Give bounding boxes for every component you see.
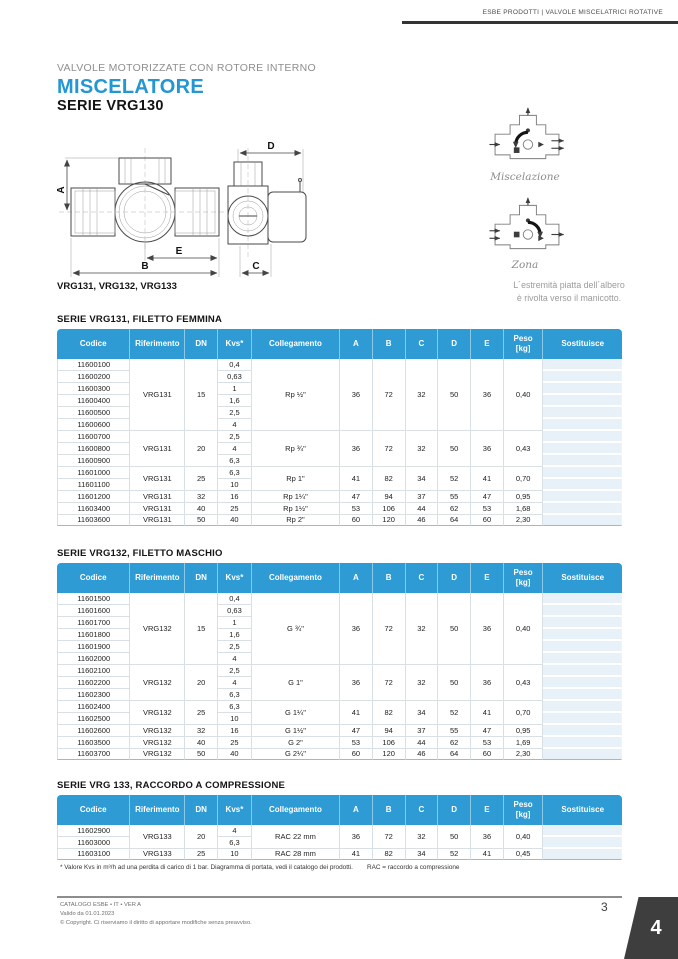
table-row: 11600100VRG131150,4Rp ½"36723250360,40 (57, 359, 622, 371)
column-header-collegamento: Collegamento (252, 329, 340, 359)
dim-label-d: D (267, 141, 274, 152)
cell-codice: 11600100 (57, 359, 130, 371)
cell-dn: 25 (185, 467, 218, 491)
column-header-peso: Peso [kg] (504, 795, 544, 825)
column-header-d: D (438, 329, 471, 359)
cell-sostituisce (543, 479, 622, 491)
data-table: CodiceRiferimentoDNKvs*CollegamentoABCDE… (57, 329, 622, 526)
cell-dn: 50 (185, 749, 218, 760)
cell-dn: 32 (185, 725, 218, 737)
cell-dn: 32 (185, 491, 218, 503)
cell-a: 47 (340, 725, 373, 737)
cell-riferimento: VRG131 (130, 491, 185, 503)
cell-sostituisce (543, 653, 622, 665)
table-row: 11603100VRG1332510RAC 28 mm41823452410,4… (57, 849, 622, 860)
cell-d: 62 (438, 503, 471, 515)
cell-sostituisce (543, 701, 622, 713)
column-header-c: C (406, 795, 439, 825)
cell-kvs: 1 (218, 383, 252, 395)
section-title: SERIE VRG 133, RACCORDO A COMPRESSIONE (57, 780, 622, 791)
eyebrow-text: VALVOLE MOTORIZZATE CON ROTORE INTERNO (57, 62, 316, 74)
cell-riferimento: VRG132 (130, 737, 185, 749)
cell-e: 36 (471, 359, 504, 431)
table-row: 11601000VRG131256,3Rp 1"41823452410,70 (57, 467, 622, 479)
column-header-sostituisce: Sostituisce (543, 795, 622, 825)
cell-a: 60 (340, 515, 373, 526)
column-header-peso: Peso [kg] (504, 329, 544, 359)
cell-kvs: 10 (218, 479, 252, 491)
cell-d: 52 (438, 467, 471, 491)
shaft-note-line1: L´estremità piatta dell´albero (513, 280, 624, 290)
drawing-caption: VRG131, VRG132, VRG133 (57, 281, 177, 292)
column-header-sostituisce: Sostituisce (543, 329, 622, 359)
cell-a: 41 (340, 701, 373, 725)
cell-peso: 0,43 (504, 665, 544, 701)
cell-collegamento: G 1¼" (252, 701, 340, 725)
cell-kvs: 16 (218, 491, 252, 503)
cell-sostituisce (543, 515, 622, 526)
cell-codice: 11602200 (57, 677, 130, 689)
cell-sostituisce (543, 825, 622, 837)
cell-kvs: 4 (218, 677, 252, 689)
cell-dn: 15 (185, 359, 218, 431)
cell-e: 41 (471, 701, 504, 725)
cell-d: 52 (438, 701, 471, 725)
cell-sostituisce (543, 665, 622, 677)
footer-rule (57, 896, 622, 898)
cell-b: 82 (373, 849, 406, 860)
cell-dn: 25 (185, 849, 218, 860)
cell-codice: 11603400 (57, 503, 130, 515)
table-row: 11603600VRG1315040Rp 2"601204664602,30 (57, 515, 622, 526)
cell-a: 36 (340, 593, 373, 665)
table-section-vrg131: SERIE VRG131, FILETTO FEMMINA CodiceRife… (57, 314, 622, 526)
cell-d: 50 (438, 431, 471, 467)
cell-b: 94 (373, 725, 406, 737)
footer-copyright-line: © Copyright. Ci riserviamo il diritto di… (60, 919, 252, 928)
cell-dn: 20 (185, 825, 218, 849)
dim-label-c: C (252, 261, 259, 272)
cell-codice: 11602500 (57, 713, 130, 725)
cell-riferimento: VRG132 (130, 749, 185, 760)
cell-collegamento: G 1" (252, 665, 340, 701)
cell-sostituisce (543, 617, 622, 629)
cell-codice: 11602000 (57, 653, 130, 665)
zone-label: Zona (453, 259, 597, 271)
cell-sostituisce (543, 677, 622, 689)
table-row: 11602600VRG1323216G 1½"47943755470,95 (57, 725, 622, 737)
cell-c: 34 (406, 701, 439, 725)
cell-sostituisce (543, 467, 622, 479)
cell-sostituisce (543, 749, 622, 760)
cell-codice: 11602100 (57, 665, 130, 677)
column-header-dn: DN (185, 795, 218, 825)
cell-a: 47 (340, 491, 373, 503)
cell-b: 72 (373, 593, 406, 665)
cell-codice: 11602900 (57, 825, 130, 837)
cell-kvs: 10 (218, 713, 252, 725)
cell-kvs: 4 (218, 419, 252, 431)
breadcrumb: ESBE PRODOTTI | VALVOLE MISCELATRICI ROT… (483, 9, 663, 16)
cell-codice: 11601600 (57, 605, 130, 617)
cell-b: 120 (373, 749, 406, 760)
cell-codice: 11603500 (57, 737, 130, 749)
cell-kvs: 4 (218, 443, 252, 455)
cell-peso: 0,70 (504, 467, 544, 491)
cell-c: 34 (406, 467, 439, 491)
header-rule (402, 21, 678, 24)
cell-sostituisce (543, 443, 622, 455)
cell-e: 36 (471, 431, 504, 467)
table-row: 11600700VRG131202,5Rp ¾"36723250360,43 (57, 431, 622, 443)
cell-sostituisce (543, 503, 622, 515)
cell-d: 50 (438, 825, 471, 849)
cell-collegamento: Rp ½" (252, 359, 340, 431)
cell-codice: 11600700 (57, 431, 130, 443)
cell-collegamento: Rp 1½" (252, 503, 340, 515)
cell-a: 60 (340, 749, 373, 760)
header-row: CodiceRiferimentoDNKvs*CollegamentoABCDE… (57, 563, 622, 593)
page-title: MISCELATORE (57, 76, 204, 99)
cell-collegamento: Rp 2" (252, 515, 340, 526)
cell-e: 47 (471, 725, 504, 737)
column-header-a: A (340, 795, 373, 825)
cell-e: 47 (471, 491, 504, 503)
cell-d: 50 (438, 359, 471, 431)
cell-codice: 11601700 (57, 617, 130, 629)
cell-codice: 11601500 (57, 593, 130, 605)
cell-sostituisce (543, 371, 622, 383)
cell-kvs: 2,5 (218, 431, 252, 443)
valve-dimension-drawing: A E B D C (57, 140, 317, 278)
cell-kvs: 2,5 (218, 641, 252, 653)
cell-b: 82 (373, 467, 406, 491)
cell-kvs: 25 (218, 737, 252, 749)
cell-sostituisce (543, 713, 622, 725)
footnote: * Valore Kvs in m³/h ad una perdita di c… (60, 864, 459, 871)
cell-d: 55 (438, 725, 471, 737)
cell-sostituisce (543, 605, 622, 617)
cell-kvs: 1,6 (218, 395, 252, 407)
table-row: 11601500VRG132150,4G ¾"36723250360,40 (57, 593, 622, 605)
cell-codice: 11601000 (57, 467, 130, 479)
cell-kvs: 2,5 (218, 665, 252, 677)
page-number: 3 (601, 900, 608, 914)
cell-e: 60 (471, 749, 504, 760)
cell-collegamento: G 2¼" (252, 749, 340, 760)
cell-c: 34 (406, 849, 439, 860)
cell-codice: 11602400 (57, 701, 130, 713)
cell-riferimento: VRG132 (130, 665, 185, 701)
cell-a: 36 (340, 665, 373, 701)
table-row: 11603500VRG1324025G 2"531064462531,69 (57, 737, 622, 749)
cell-d: 50 (438, 593, 471, 665)
cell-kvs: 10 (218, 849, 252, 860)
cell-kvs: 40 (218, 749, 252, 760)
cell-codice: 11600500 (57, 407, 130, 419)
footnote-kvs: * Valore Kvs in m³/h ad una perdita di c… (60, 864, 353, 871)
cell-riferimento: VRG131 (130, 467, 185, 491)
column-header-sostituisce: Sostituisce (543, 563, 622, 593)
cell-sostituisce (543, 629, 622, 641)
cell-kvs: 0,4 (218, 359, 252, 371)
cell-kvs: 0,63 (218, 371, 252, 383)
cell-peso: 0,40 (504, 359, 544, 431)
cell-c: 44 (406, 737, 439, 749)
product-table: CodiceRiferimentoDNKvs*CollegamentoABCDE… (57, 563, 622, 760)
cell-b: 82 (373, 701, 406, 725)
cell-kvs: 4 (218, 825, 252, 837)
section-title: SERIE VRG131, FILETTO FEMMINA (57, 314, 622, 325)
cell-collegamento: G ¾" (252, 593, 340, 665)
cell-dn: 20 (185, 431, 218, 467)
cell-e: 41 (471, 849, 504, 860)
cell-peso: 0,95 (504, 491, 544, 503)
footer-valid-line: Valido da 01.01.2023 (60, 910, 252, 919)
cell-riferimento: VRG131 (130, 503, 185, 515)
column-header-codice: Codice (57, 329, 130, 359)
column-header-kvs: Kvs* (218, 329, 252, 359)
cell-a: 36 (340, 431, 373, 467)
column-header-riferimento: Riferimento (130, 563, 185, 593)
cell-kvs: 40 (218, 515, 252, 526)
column-header-b: B (373, 795, 406, 825)
data-table: CodiceRiferimentoDNKvs*CollegamentoABCDE… (57, 563, 622, 760)
cell-riferimento: VRG131 (130, 515, 185, 526)
table-row: 11602400VRG132256,3G 1¼"41823452410,70 (57, 701, 622, 713)
column-header-a: A (340, 563, 373, 593)
cell-collegamento: RAC 22 mm (252, 825, 340, 849)
cell-sostituisce (543, 359, 622, 371)
column-header-e: E (471, 795, 504, 825)
cell-kvs: 1,6 (218, 629, 252, 641)
footnote-rac: RAC = raccordo a compressione (367, 864, 460, 871)
column-header-e: E (471, 563, 504, 593)
column-header-b: B (373, 563, 406, 593)
cell-riferimento: VRG132 (130, 593, 185, 665)
cell-a: 41 (340, 467, 373, 491)
column-header-d: D (438, 563, 471, 593)
cell-sostituisce (543, 431, 622, 443)
cell-kvs: 6,3 (218, 689, 252, 701)
column-header-c: C (406, 563, 439, 593)
cell-e: 60 (471, 515, 504, 526)
cell-codice: 11601200 (57, 491, 130, 503)
column-header-d: D (438, 795, 471, 825)
cell-sostituisce (543, 395, 622, 407)
column-header-a: A (340, 329, 373, 359)
cell-peso: 0,45 (504, 849, 544, 860)
series-subtitle: SERIE VRG130 (57, 98, 164, 114)
cell-codice: 11600900 (57, 455, 130, 467)
cell-codice: 11603000 (57, 837, 130, 849)
cell-peso: 0,95 (504, 725, 544, 737)
zone-valve-symbol (489, 196, 565, 258)
cell-kvs: 0,4 (218, 593, 252, 605)
cell-kvs: 25 (218, 503, 252, 515)
cell-b: 72 (373, 431, 406, 467)
cell-c: 32 (406, 359, 439, 431)
cell-peso: 0,70 (504, 701, 544, 725)
cell-c: 37 (406, 725, 439, 737)
column-header-riferimento: Riferimento (130, 329, 185, 359)
cell-e: 41 (471, 467, 504, 491)
cell-riferimento: VRG132 (130, 701, 185, 725)
cell-kvs: 6,3 (218, 455, 252, 467)
data-table: CodiceRiferimentoDNKvs*CollegamentoABCDE… (57, 795, 622, 860)
cell-kvs: 1 (218, 617, 252, 629)
table-section-vrg132: SERIE VRG132, FILETTO MASCHIO CodiceRife… (57, 548, 622, 760)
dim-label-e: E (176, 246, 183, 257)
cell-kvs: 4 (218, 653, 252, 665)
footer-catalog-line: CATALOGO ESBE • IT • VER A (60, 901, 252, 910)
cell-peso: 1,68 (504, 503, 544, 515)
cell-b: 72 (373, 665, 406, 701)
cell-c: 32 (406, 593, 439, 665)
cell-sostituisce (543, 593, 622, 605)
column-header-riferimento: Riferimento (130, 795, 185, 825)
cell-sostituisce (543, 725, 622, 737)
column-header-c: C (406, 329, 439, 359)
product-table: CodiceRiferimentoDNKvs*CollegamentoABCDE… (57, 795, 622, 860)
cell-kvs: 6,3 (218, 837, 252, 849)
cell-dn: 20 (185, 665, 218, 701)
mixing-label: Miscelazione (453, 171, 597, 183)
cell-riferimento: VRG133 (130, 825, 185, 849)
cell-kvs: 6,3 (218, 467, 252, 479)
cell-kvs: 6,3 (218, 701, 252, 713)
cell-codice: 11600800 (57, 443, 130, 455)
cell-b: 72 (373, 825, 406, 849)
mixing-valve-symbol (489, 106, 565, 168)
cell-a: 36 (340, 825, 373, 849)
column-header-codice: Codice (57, 795, 130, 825)
header-row: CodiceRiferimentoDNKvs*CollegamentoABCDE… (57, 329, 622, 359)
cell-a: 36 (340, 359, 373, 431)
cell-codice: 11600200 (57, 371, 130, 383)
cell-e: 53 (471, 737, 504, 749)
dim-label-a: A (57, 186, 67, 193)
cell-a: 41 (340, 849, 373, 860)
cell-collegamento: G 2" (252, 737, 340, 749)
cell-d: 55 (438, 491, 471, 503)
cell-d: 62 (438, 737, 471, 749)
cell-codice: 11603700 (57, 749, 130, 760)
table-section-vrg133: SERIE VRG 133, RACCORDO A COMPRESSIONE C… (57, 780, 622, 860)
cell-codice: 11601100 (57, 479, 130, 491)
column-header-e: E (471, 329, 504, 359)
cell-dn: 50 (185, 515, 218, 526)
cell-sostituisce (543, 407, 622, 419)
table-row: 11603400VRG1314025Rp 1½"531064462531,68 (57, 503, 622, 515)
cell-riferimento: VRG132 (130, 725, 185, 737)
cell-peso: 0,43 (504, 431, 544, 467)
cell-kvs: 0,63 (218, 605, 252, 617)
cell-b: 94 (373, 491, 406, 503)
cell-kvs: 2,5 (218, 407, 252, 419)
column-header-peso: Peso [kg] (504, 563, 544, 593)
cell-collegamento: Rp ¾" (252, 431, 340, 467)
cell-d: 50 (438, 665, 471, 701)
cell-a: 53 (340, 503, 373, 515)
cell-dn: 40 (185, 503, 218, 515)
cell-a: 53 (340, 737, 373, 749)
cell-peso: 1,69 (504, 737, 544, 749)
column-header-collegamento: Collegamento (252, 563, 340, 593)
cell-b: 120 (373, 515, 406, 526)
cell-sostituisce (543, 383, 622, 395)
cell-b: 106 (373, 503, 406, 515)
cell-peso: 0,40 (504, 825, 544, 849)
cell-sostituisce (543, 849, 622, 860)
table-row: 11602900VRG133204RAC 22 mm36723250360,40 (57, 825, 622, 837)
cell-e: 36 (471, 593, 504, 665)
dim-label-b: B (141, 261, 148, 272)
cell-d: 64 (438, 515, 471, 526)
cell-sostituisce (543, 737, 622, 749)
cell-e: 36 (471, 665, 504, 701)
column-header-kvs: Kvs* (218, 563, 252, 593)
cell-codice: 11603100 (57, 849, 130, 860)
cell-sostituisce (543, 491, 622, 503)
cell-d: 64 (438, 749, 471, 760)
table-row: 11602100VRG132202,5G 1"36723250360,43 (57, 665, 622, 677)
cell-collegamento: Rp 1" (252, 467, 340, 491)
cell-sostituisce (543, 455, 622, 467)
cell-peso: 0,40 (504, 593, 544, 665)
cell-e: 53 (471, 503, 504, 515)
footer-text: CATALOGO ESBE • IT • VER A Valido da 01.… (60, 901, 252, 928)
column-header-dn: DN (185, 329, 218, 359)
cell-dn: 40 (185, 737, 218, 749)
cell-c: 32 (406, 431, 439, 467)
section-title: SERIE VRG132, FILETTO MASCHIO (57, 548, 622, 559)
cell-dn: 25 (185, 701, 218, 725)
chapter-tab-number: 4 (640, 917, 661, 940)
cell-c: 46 (406, 749, 439, 760)
cell-sostituisce (543, 641, 622, 653)
cell-peso: 2,30 (504, 749, 544, 760)
header-row: CodiceRiferimentoDNKvs*CollegamentoABCDE… (57, 795, 622, 825)
cell-codice: 11602300 (57, 689, 130, 701)
cell-c: 32 (406, 825, 439, 849)
column-header-dn: DN (185, 563, 218, 593)
cell-c: 32 (406, 665, 439, 701)
cell-peso: 2,30 (504, 515, 544, 526)
cell-b: 106 (373, 737, 406, 749)
cell-c: 46 (406, 515, 439, 526)
cell-collegamento: Rp 1¼" (252, 491, 340, 503)
cell-riferimento: VRG133 (130, 849, 185, 860)
cell-codice: 11603600 (57, 515, 130, 526)
cell-d: 52 (438, 849, 471, 860)
cell-c: 44 (406, 503, 439, 515)
shaft-note: L´estremità piatta dell´albero è rivolta… (473, 279, 665, 305)
cell-codice: 11600300 (57, 383, 130, 395)
cell-sostituisce (543, 419, 622, 431)
cell-e: 36 (471, 825, 504, 849)
cell-codice: 11601800 (57, 629, 130, 641)
table-row: 11601200VRG1313216Rp 1¼"47943755470,95 (57, 491, 622, 503)
table-row: 11603700VRG1325040G 2¼"601204664602,30 (57, 749, 622, 760)
column-header-b: B (373, 329, 406, 359)
column-header-kvs: Kvs* (218, 795, 252, 825)
cell-c: 37 (406, 491, 439, 503)
column-header-codice: Codice (57, 563, 130, 593)
column-header-collegamento: Collegamento (252, 795, 340, 825)
cell-riferimento: VRG131 (130, 431, 185, 467)
cell-codice: 11600400 (57, 395, 130, 407)
